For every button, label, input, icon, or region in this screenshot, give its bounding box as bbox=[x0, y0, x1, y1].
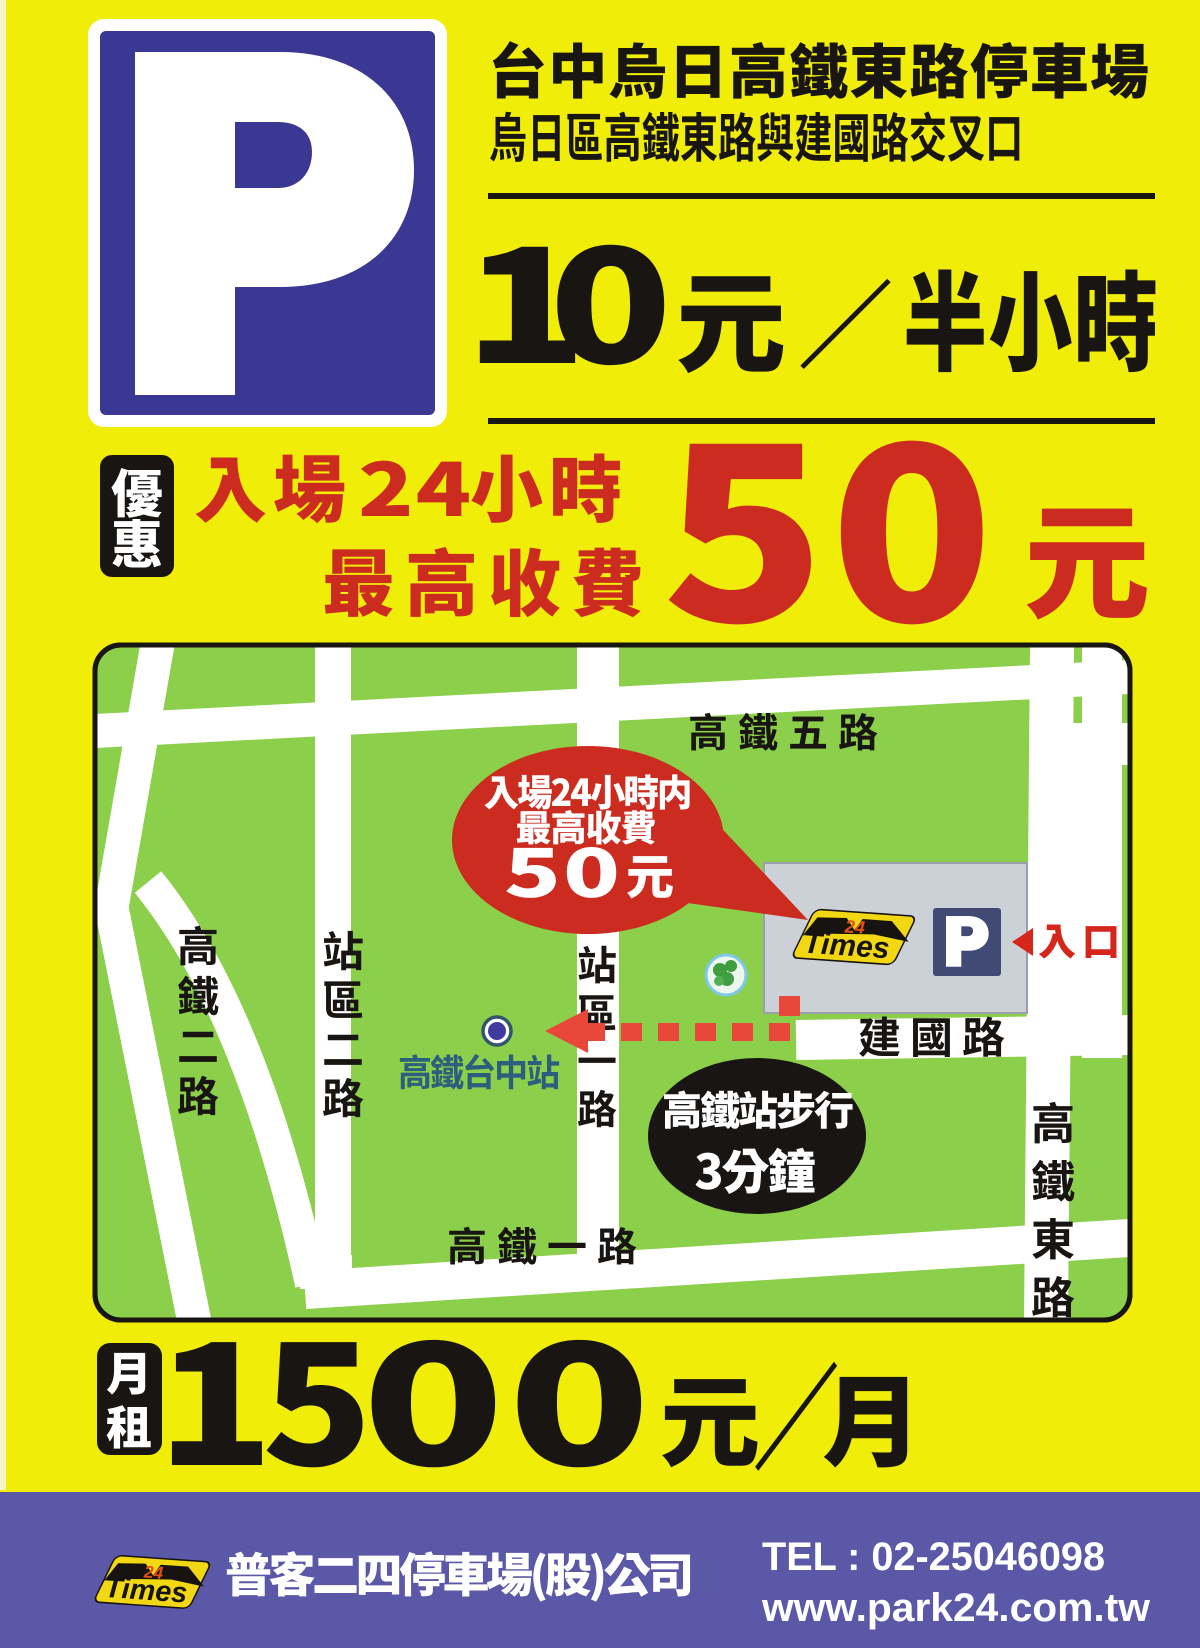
svg-text:TEL : 02-25046098: TEL : 02-25046098 bbox=[762, 1535, 1105, 1579]
svg-text:www.park24.com.tw: www.park24.com.tw bbox=[761, 1586, 1151, 1630]
